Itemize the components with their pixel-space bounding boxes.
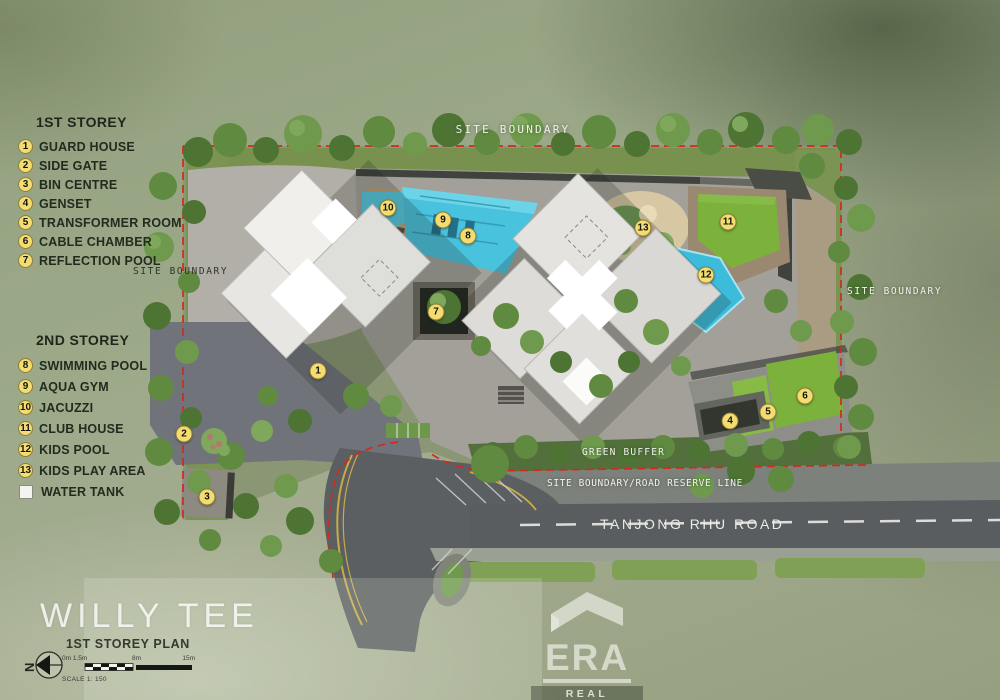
- legend-label: BIN CENTRE: [39, 178, 117, 192]
- site-boundary-label-top: SITE BOUNDARY: [428, 123, 598, 136]
- plan-marker-transformer-room: 5: [760, 404, 777, 421]
- legend-badge-11: 11: [18, 421, 33, 436]
- scale-tick-end: 15m: [182, 655, 195, 662]
- legend-item-side-gate: 2 SIDE GATE: [18, 156, 203, 175]
- legend-item-cable-chamber: 6 CABLE CHAMBER: [18, 232, 203, 251]
- legend-label: AQUA GYM: [39, 380, 109, 394]
- plan-marker-jacuzzi: 10: [379, 200, 396, 217]
- site-boundary-label-right: SITE BOUNDARY: [847, 286, 942, 297]
- legend-item-transformer-room: 5 TRANSFORMER ROOM: [18, 213, 203, 232]
- stairs: [498, 386, 524, 404]
- plan-marker-guard-house: 1: [310, 363, 327, 380]
- scale-tick-0: 0m 1.5m: [62, 655, 87, 662]
- plan-marker-kids-pool: 12: [697, 267, 714, 284]
- legend-label: CLUB HOUSE: [39, 422, 124, 436]
- legend-label: SIDE GATE: [39, 159, 107, 173]
- legend-item-aqua-gym: 9 AQUA GYM: [18, 376, 203, 397]
- legend-heading-2nd-storey: 2ND STOREY: [18, 332, 203, 348]
- era-underline: [543, 679, 631, 683]
- legend-badge-10: 10: [18, 400, 33, 415]
- legend-label: KIDS POOL: [39, 443, 110, 457]
- legend-badge-5: 5: [18, 215, 33, 230]
- era-brand-text: ERA: [531, 639, 643, 676]
- legend-second-storey: 2ND STOREY 8 SWIMMING POOL 9 AQUA GYM 10…: [18, 332, 203, 502]
- legend-label: GUARD HOUSE: [39, 140, 135, 154]
- legend-badge-8: 8: [18, 358, 33, 373]
- legend-badge-7: 7: [18, 253, 33, 268]
- plan-marker-cable-chamber: 6: [797, 388, 814, 405]
- plan-title: 1ST STOREY PLAN: [66, 637, 190, 651]
- plan-marker-club-house: 11: [720, 214, 737, 231]
- legend-badge-4: 4: [18, 196, 33, 211]
- legend-item-kids-play-area: 13 KIDS PLAY AREA: [18, 460, 203, 481]
- scale-tick-mid: 8m: [132, 655, 141, 662]
- site-plan-sheet: 1ST STOREY 1 GUARD HOUSE 2 SIDE GATE 3 B…: [0, 0, 1000, 700]
- legend-label: KIDS PLAY AREA: [39, 464, 146, 478]
- water-tank-swatch: [19, 485, 33, 499]
- plan-marker-reflection-pool: 7: [428, 304, 445, 321]
- road-name-label: TANJONG RHU ROAD: [600, 516, 780, 532]
- legend-label: TRANSFORMER ROOM: [39, 216, 182, 230]
- watermark: WILLY TEE: [40, 597, 259, 636]
- legend-label: WATER TANK: [41, 485, 124, 499]
- legend-item-genset: 4 GENSET: [18, 194, 203, 213]
- era-subtitle-text: REAL ESTATE: [531, 686, 643, 700]
- legend-item-water-tank: WATER TANK: [18, 481, 203, 502]
- legend-item-swimming-pool: 8 SWIMMING POOL: [18, 355, 203, 376]
- legend-badge-9: 9: [18, 379, 33, 394]
- legend-item-jacuzzi: 10 JACUZZI: [18, 397, 203, 418]
- legend-label: GENSET: [39, 197, 92, 211]
- scale-bar: 0m 1.5m 8m 15m SCALE 1: 150: [60, 655, 195, 683]
- legend-heading-1st-storey: 1ST STOREY: [18, 114, 203, 130]
- scale-ticks: 0m 1.5m 8m 15m: [60, 655, 195, 663]
- plan-marker-bin-centre: 3: [199, 489, 216, 506]
- legend-badge-3: 3: [18, 177, 33, 192]
- legend-label: SWIMMING POOL: [39, 359, 147, 373]
- scale-bar-graphic: [60, 663, 195, 672]
- plan-marker-kids-play-area: 13: [634, 220, 651, 237]
- legend-label: JACUZZI: [39, 401, 93, 415]
- legend-first-storey: 1ST STOREY 1 GUARD HOUSE 2 SIDE GATE 3 B…: [18, 114, 203, 270]
- legend-badge-1: 1: [18, 139, 33, 154]
- plan-marker-side-gate: 2: [176, 426, 193, 443]
- legend-badge-13: 13: [18, 463, 33, 478]
- era-house-icon: [541, 582, 633, 634]
- plan-marker-swimming-pool: 8: [460, 228, 477, 245]
- legend-badge-12: 12: [18, 442, 33, 457]
- legend-item-guard-house: 1 GUARD HOUSE: [18, 137, 203, 156]
- plan-marker-aqua-gym: 9: [435, 212, 452, 229]
- parking-strip: [386, 423, 430, 438]
- legend-item-kids-pool: 12 KIDS POOL: [18, 439, 203, 460]
- legend-badge-2: 2: [18, 158, 33, 173]
- plan-marker-genset: 4: [722, 413, 739, 430]
- era-logo: ERA REAL ESTATE: [531, 582, 643, 700]
- compass-letter: N: [22, 663, 37, 672]
- green-buffer-label: GREEN BUFFER: [582, 447, 665, 458]
- legend: 1ST STOREY 1 GUARD HOUSE 2 SIDE GATE 3 B…: [18, 114, 203, 502]
- road-reserve-line-label: SITE BOUNDARY/ROAD RESERVE LINE: [547, 478, 743, 489]
- legend-item-bin-centre: 3 BIN CENTRE: [18, 175, 203, 194]
- site-boundary-label-left: SITE BOUNDARY: [133, 266, 228, 277]
- legend-label: CABLE CHAMBER: [39, 235, 152, 249]
- legend-badge-6: 6: [18, 234, 33, 249]
- scale-caption: SCALE 1: 150: [62, 676, 195, 683]
